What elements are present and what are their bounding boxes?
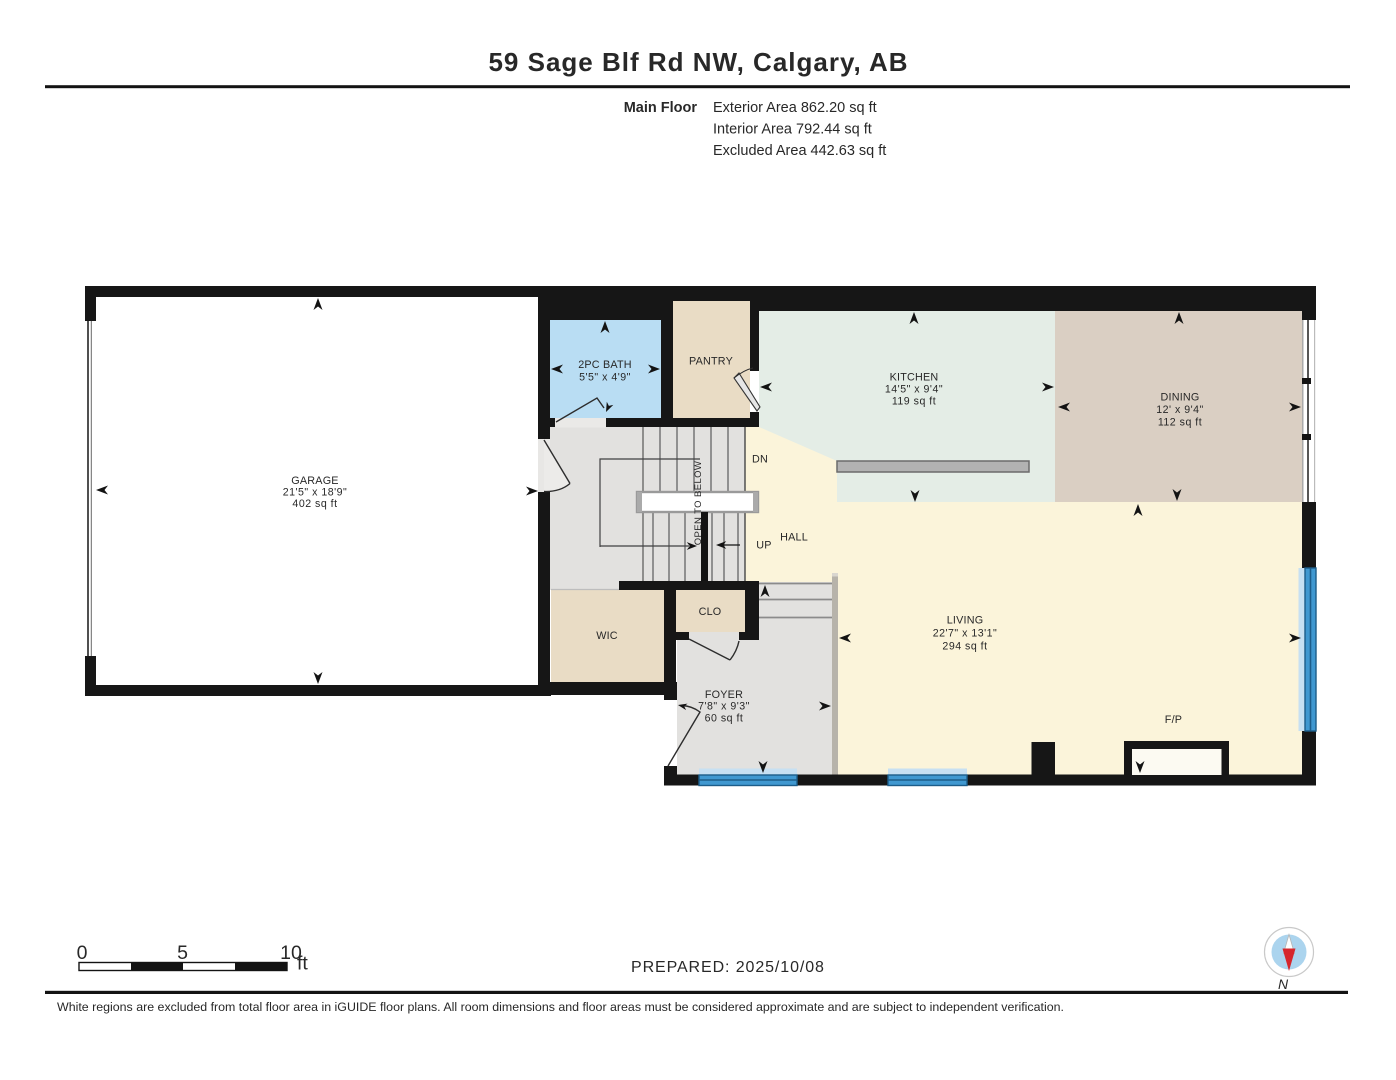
svg-text:22'7" x 13'1": 22'7" x 13'1" (933, 628, 998, 640)
svg-text:5: 5 (177, 942, 188, 964)
svg-text:7'8" x 9'3": 7'8" x 9'3" (698, 701, 750, 713)
svg-text:Interior Area 792.44 sq ft: Interior Area 792.44 sq ft (713, 122, 872, 138)
svg-text:119 sq ft: 119 sq ft (892, 396, 936, 408)
svg-text:5'5" x 4'9": 5'5" x 4'9" (579, 372, 631, 384)
svg-text:DINING: DINING (1161, 392, 1200, 404)
svg-text:OPEN TO BELOW: OPEN TO BELOW (693, 461, 704, 546)
svg-text:DN: DN (752, 454, 768, 466)
svg-text:12' x 9'4": 12' x 9'4" (1156, 404, 1204, 416)
svg-text:WIC: WIC (596, 630, 618, 642)
svg-text:White regions are excluded fro: White regions are excluded from total fl… (57, 1000, 1064, 1014)
svg-text:ft: ft (297, 953, 308, 975)
svg-text:112 sq ft: 112 sq ft (1158, 417, 1202, 429)
svg-text:0: 0 (77, 942, 88, 964)
svg-text:402 sq ft: 402 sq ft (292, 498, 337, 510)
svg-text:GARAGE: GARAGE (291, 475, 338, 487)
svg-text:294 sq ft: 294 sq ft (942, 641, 987, 653)
svg-text:PREPARED: 2025/10/08: PREPARED: 2025/10/08 (631, 959, 825, 976)
svg-text:F/P: F/P (1165, 714, 1182, 726)
svg-text:Exterior Area 862.20 sq ft: Exterior Area 862.20 sq ft (713, 100, 877, 116)
svg-text:21'5" x 18'9": 21'5" x 18'9" (283, 487, 348, 499)
svg-text:CLO: CLO (699, 606, 722, 618)
svg-text:HALL: HALL (780, 532, 808, 544)
svg-text:2PC BATH: 2PC BATH (578, 359, 632, 371)
svg-text:PANTRY: PANTRY (689, 356, 733, 368)
svg-text:14'5" x 9'4": 14'5" x 9'4" (885, 384, 943, 396)
svg-text:UP: UP (756, 540, 771, 552)
svg-text:N: N (1278, 976, 1289, 992)
svg-text:FOYER: FOYER (705, 689, 743, 701)
svg-text:KITCHEN: KITCHEN (890, 372, 939, 384)
svg-text:Main Floor: Main Floor (624, 100, 698, 116)
svg-text:59 Sage Blf Rd NW, Calgary, AB: 59 Sage Blf Rd NW, Calgary, AB (488, 47, 908, 77)
svg-text:LIVING: LIVING (947, 615, 984, 627)
svg-text:60 sq ft: 60 sq ft (705, 713, 744, 725)
svg-text:Excluded Area 442.63 sq ft: Excluded Area 442.63 sq ft (713, 143, 886, 159)
